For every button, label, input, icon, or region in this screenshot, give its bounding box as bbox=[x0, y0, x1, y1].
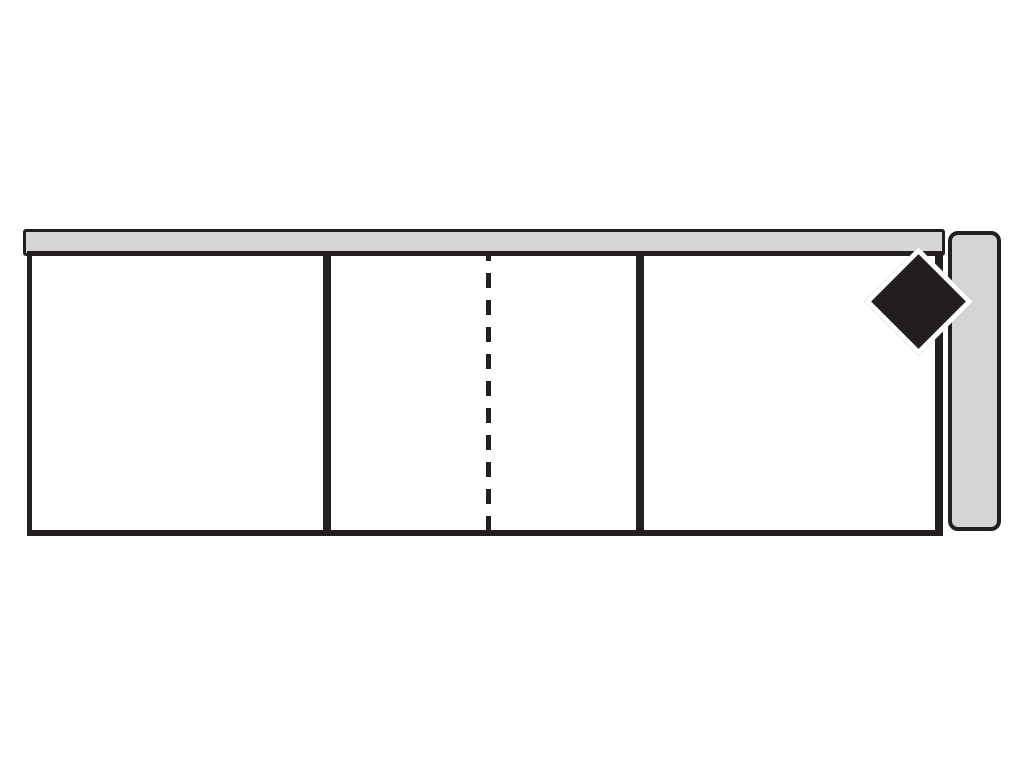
side-panel-right bbox=[948, 231, 1001, 531]
divider-left bbox=[323, 253, 331, 532]
diagram-canvas bbox=[0, 0, 1024, 768]
cabinet-body bbox=[27, 251, 943, 536]
divider-right bbox=[636, 253, 644, 532]
center-dashed-line bbox=[486, 256, 491, 530]
